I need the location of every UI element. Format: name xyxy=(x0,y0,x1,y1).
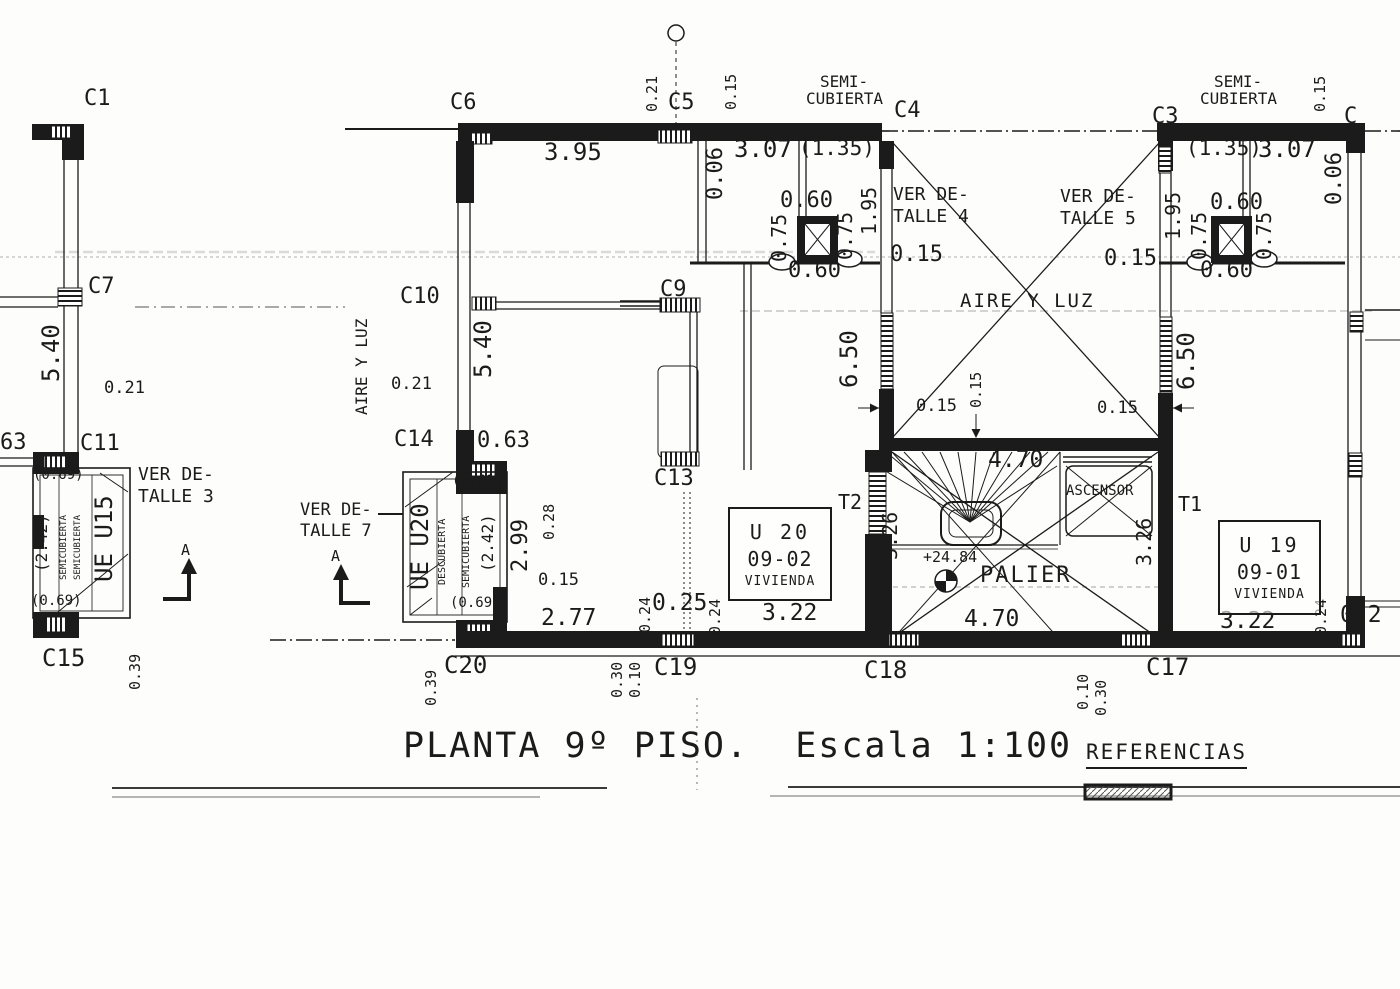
note-label: VER DE- xyxy=(893,186,969,204)
dimension-label: 0.15 xyxy=(724,74,739,110)
column-label: C18 xyxy=(864,658,907,682)
dimension-label: 0.21 xyxy=(391,376,432,393)
references-heading: REFERENCIAS xyxy=(1086,740,1247,769)
dimension-label: 0.30 xyxy=(610,662,625,698)
note-label: TALLE 3 xyxy=(138,488,214,506)
note-label: TALLE 5 xyxy=(1060,210,1136,228)
dimension-label: 1.95 xyxy=(1163,192,1183,240)
room-label: CUBIERTA xyxy=(806,91,883,107)
dimension-label: 2.77 xyxy=(541,607,596,630)
dimension-label: 0.15 xyxy=(1313,76,1328,112)
column-label: C11 xyxy=(80,433,120,455)
section-label: A xyxy=(331,549,340,564)
column-label: C xyxy=(1344,106,1357,128)
note-label: VER DE- xyxy=(138,466,214,484)
note-label: TALLE 4 xyxy=(893,208,969,226)
dimension-label: 6.50 xyxy=(837,330,861,388)
column-label: T1 xyxy=(1178,494,1202,514)
dimension-label: 0.2 xyxy=(1340,604,1382,627)
dimension-label: (1.35) xyxy=(799,138,875,159)
column-label: C20 xyxy=(444,653,487,677)
column-label: C10 xyxy=(400,286,440,308)
unit-number: U 20 xyxy=(750,520,810,544)
column-label: C19 xyxy=(654,655,697,679)
column-label: T2 xyxy=(838,492,862,512)
dimension-label: 0.63 xyxy=(477,430,530,452)
dimension-label: 0.75 xyxy=(1189,212,1209,260)
column-label: C6 xyxy=(450,92,477,114)
dimension-label: 3.22 xyxy=(762,602,817,625)
room-label: AIRE Y LUZ xyxy=(960,292,1094,311)
unit-number: U 19 xyxy=(1239,533,1299,557)
column-label: C5 xyxy=(668,92,695,114)
dimension-label: 4.70 xyxy=(988,449,1043,472)
column-label: C9 xyxy=(660,279,687,301)
note-label: VER DE- xyxy=(300,502,372,519)
dimension-label: 3.07 xyxy=(1258,137,1316,161)
column-label: C13 xyxy=(654,468,694,490)
note-label: VER DE- xyxy=(1060,188,1136,206)
dimension-label: 6.50 xyxy=(1174,332,1198,390)
room-label: SEMICUBIERTA xyxy=(462,516,472,588)
note-label: TALLE 7 xyxy=(300,523,372,540)
unit-box-u20: U 20 09-02 VIVIENDA xyxy=(728,507,832,601)
dimension-label: 0.15 xyxy=(890,244,943,266)
unit-box-u19: U 19 09-01 VIVIENDA xyxy=(1218,520,1321,615)
dimension-label: 0.60 xyxy=(780,190,833,212)
dimension-label: 0.15 xyxy=(538,572,579,589)
level-label: +24.84 xyxy=(923,550,977,565)
dimension-label: 0.21 xyxy=(645,76,660,112)
dimension-label: (2.42) xyxy=(34,514,50,572)
dimension-label: 0.39 xyxy=(128,654,143,690)
dimension-label: 0.39 xyxy=(424,670,439,706)
dimension-label: 0.75 xyxy=(835,212,855,260)
room-label: ASCENSOR xyxy=(1066,484,1133,498)
dimension-label: 3.26 xyxy=(1134,518,1154,566)
dimension-label: 0.24 xyxy=(638,597,653,633)
column-label: C7 xyxy=(88,276,115,298)
dimension-label: (0.69) xyxy=(450,596,501,610)
dimension-label: 1.95 xyxy=(859,187,879,235)
room-label: UE U15 xyxy=(92,495,116,582)
dimension-label: 0.15 xyxy=(969,372,984,408)
dimension-label: 0.25 xyxy=(652,592,707,615)
dimension-label: 3.26 xyxy=(880,512,900,560)
room-label: SEMI- xyxy=(820,74,868,90)
dimension-label: (0.69) xyxy=(31,594,82,608)
room-label: SEMICUBIERTA xyxy=(60,515,69,580)
dimension-label: 0.60 xyxy=(788,260,841,282)
room-label: SEMICUBIERTA xyxy=(74,515,83,580)
section-label: A xyxy=(181,543,190,558)
room-label: CUBIERTA xyxy=(1200,91,1277,107)
dimension-label: 5.40 xyxy=(471,320,495,378)
scanned-floorplan-sheet: C1C6C5C4C3CC7C10C9C11C14C13T2T1C15C20C19… xyxy=(0,0,1400,989)
room-label: UE U20 xyxy=(408,503,432,590)
room-label: SEMI- xyxy=(1214,74,1262,90)
dimension-label: 3.07 xyxy=(734,137,792,161)
dimension-label: 0.75 xyxy=(1254,212,1274,260)
unit-code: 09-02 xyxy=(747,547,812,571)
unit-code: 09-01 xyxy=(1237,560,1302,584)
unit-type: VIVIENDA xyxy=(745,574,816,589)
plan-title: PLANTA 9º PISO. Escala 1:100 xyxy=(403,726,1072,766)
column-label: C17 xyxy=(1146,655,1189,679)
dimension-label: 5.40 xyxy=(39,324,63,382)
column-label: C4 xyxy=(894,100,921,122)
dimension-label: 0.28 xyxy=(542,504,557,540)
dimension-label: 2.99 xyxy=(510,519,532,572)
dimension-label: 0.75 xyxy=(769,214,789,262)
dimension-label: 3.95 xyxy=(544,140,602,164)
column-label: C3 xyxy=(1152,106,1179,128)
dimension-label: 0.06 xyxy=(1324,152,1346,205)
dimension-label: (0.69) xyxy=(452,474,503,488)
unit-type: VIVIENDA xyxy=(1234,587,1305,602)
column-label: C15 xyxy=(42,646,85,670)
dimension-label: 0.21 xyxy=(104,380,145,397)
dimension-label: 0.30 xyxy=(1094,680,1109,716)
dimension-label: 0.15 xyxy=(916,398,957,415)
dimension-label: (2.42) xyxy=(480,514,496,572)
dimension-label: (1.35) xyxy=(1186,138,1262,159)
dimension-label: 0.10 xyxy=(1076,674,1091,710)
dimension-label: 0.15 xyxy=(1097,400,1138,417)
room-label: DESCUBIERTA xyxy=(438,519,448,585)
dimension-label: (0.69) xyxy=(33,468,84,482)
room-label: AIRE Y LUZ xyxy=(354,319,370,415)
dimension-label: 0.06 xyxy=(705,147,727,200)
column-label: C1 xyxy=(84,88,111,110)
room-label: PALIER xyxy=(980,565,1071,587)
column-label: C14 xyxy=(394,429,434,451)
dimension-label: 0.15 xyxy=(1104,248,1157,270)
dimension-label: 4.70 xyxy=(964,608,1019,631)
column-label: 63 xyxy=(0,432,27,454)
dimension-label: 0.60 xyxy=(1200,260,1253,282)
dimension-label: 0.24 xyxy=(708,599,723,635)
dimension-label: 0.10 xyxy=(628,662,643,698)
dimension-label: 0.60 xyxy=(1210,192,1263,214)
